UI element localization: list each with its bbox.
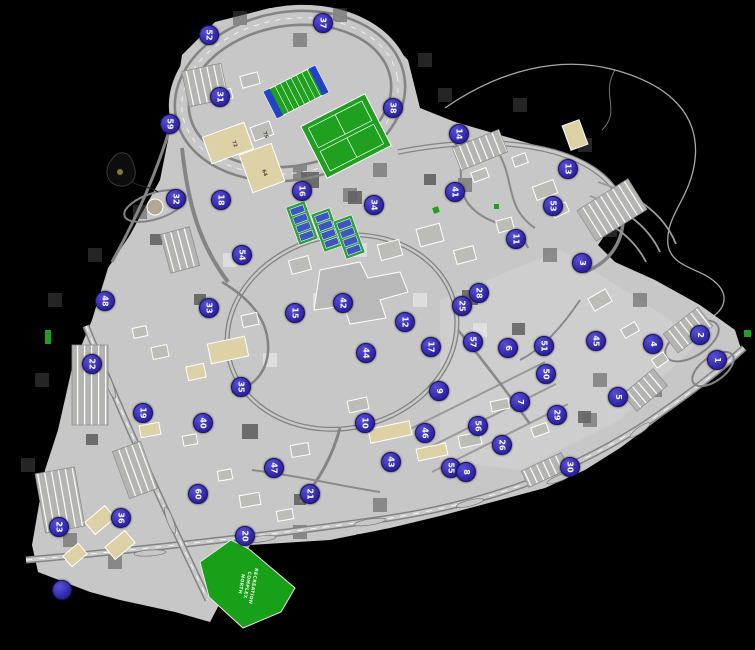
map-marker-1[interactable]: 1 [707,350,727,370]
marker-number: 5 [614,394,622,400]
marker-number: 32 [172,193,180,204]
map-marker-36[interactable]: 36 [111,508,131,528]
map-marker-60[interactable]: 60 [188,484,208,504]
map-marker-37[interactable]: 37 [313,13,333,33]
marker-number: 29 [553,409,561,420]
map-marker-52[interactable]: 52 [199,25,219,45]
marker-number: 10 [361,417,369,428]
marker-number: 20 [241,530,249,541]
campus-map-base: 72 75 64 [0,0,755,650]
marker-number: 43 [387,456,395,467]
marker-number: 23 [55,521,63,532]
marker-number: 6 [504,345,512,351]
map-marker-14[interactable]: 14 [449,124,469,144]
map-marker-2[interactable]: 2 [690,325,710,345]
map-marker-29[interactable]: 29 [547,405,567,425]
map-marker-26[interactable]: 26 [492,435,512,455]
map-marker-51[interactable]: 51 [534,336,554,356]
map-marker-17[interactable]: 17 [421,337,441,357]
map-marker-45[interactable]: 45 [586,331,606,351]
map-marker-22[interactable]: 22 [82,354,102,374]
map-marker-54[interactable]: 54 [232,245,252,265]
marker-number: 30 [566,461,574,472]
map-marker-44[interactable]: 44 [356,343,376,363]
map-marker-unlabeled[interactable] [52,580,72,600]
map-marker-50[interactable]: 50 [536,364,556,384]
map-marker-30[interactable]: 30 [560,457,580,477]
map-marker-34[interactable]: 34 [364,195,384,215]
marker-number: 33 [205,302,213,313]
map-marker-43[interactable]: 43 [381,452,401,472]
marker-number: 3 [578,260,586,266]
map-marker-9[interactable]: 9 [429,381,449,401]
marker-number: 55 [447,462,455,473]
map-marker-40[interactable]: 40 [193,413,213,433]
marker-number: 54 [238,249,246,260]
marker-number: 1 [713,357,721,363]
map-marker-23[interactable]: 23 [49,517,69,537]
marker-number: 44 [362,347,370,358]
marker-number: 18 [217,194,225,205]
map-marker-5[interactable]: 5 [608,387,628,407]
map-marker-59[interactable]: 59 [160,114,180,134]
marker-number: 45 [592,335,600,346]
marker-number: 22 [88,358,96,369]
campus-map: 72 75 64 [0,0,755,650]
marker-number: 26 [498,439,506,450]
map-marker-47[interactable]: 47 [264,458,284,478]
map-marker-4[interactable]: 4 [643,334,663,354]
map-marker-41[interactable]: 41 [445,182,465,202]
map-marker-12[interactable]: 12 [395,312,415,332]
map-marker-56[interactable]: 56 [468,416,488,436]
marker-number: 19 [139,407,147,418]
map-marker-31[interactable]: 31 [210,87,230,107]
map-marker-57[interactable]: 57 [463,332,483,352]
marker-number: 16 [298,185,306,196]
map-marker-19[interactable]: 19 [133,403,153,423]
map-marker-15[interactable]: 15 [285,303,305,323]
marker-number: 31 [216,91,224,102]
marker-number: 8 [462,469,470,475]
marker-number: 12 [401,316,409,327]
marker-number: 7 [516,399,524,405]
map-marker-16[interactable]: 16 [292,181,312,201]
map-marker-10[interactable]: 10 [355,413,375,433]
marker-number: 9 [435,388,443,394]
marker-number: 14 [455,128,463,139]
map-marker-25[interactable]: 25 [452,296,472,316]
map-marker-32[interactable]: 32 [166,189,186,209]
marker-number: 25 [458,300,466,311]
map-marker-20[interactable]: 20 [235,526,255,546]
marker-number: 52 [205,29,213,40]
marker-number: 42 [339,297,347,308]
marker-number: 47 [270,462,278,473]
map-marker-38[interactable]: 38 [383,98,403,118]
map-marker-48[interactable]: 48 [95,291,115,311]
marker-number: 59 [166,118,174,129]
map-marker-7[interactable]: 7 [510,392,530,412]
marker-number: 56 [474,420,482,431]
marker-number: 53 [549,200,557,211]
map-marker-46[interactable]: 46 [415,423,435,443]
marker-number: 40 [199,417,207,428]
marker-number: 38 [389,102,397,113]
marker-number: 17 [427,341,435,352]
marker-number: 37 [319,17,327,28]
map-marker-6[interactable]: 6 [498,338,518,358]
map-marker-53[interactable]: 53 [543,196,563,216]
map-marker-42[interactable]: 42 [333,293,353,313]
land-silhouette [32,0,742,622]
marker-number: 57 [469,336,477,347]
map-marker-18[interactable]: 18 [211,190,231,210]
marker-number: 2 [696,332,704,338]
marker-number: 46 [421,427,429,438]
map-marker-33[interactable]: 33 [199,298,219,318]
marker-number: 60 [194,488,202,499]
map-marker-21[interactable]: 21 [300,484,320,504]
marker-number: 13 [564,163,572,174]
map-marker-3[interactable]: 3 [572,253,592,273]
map-marker-35[interactable]: 35 [231,377,251,397]
marker-number: 34 [370,199,378,210]
marker-number: 35 [237,381,245,392]
marker-number: 48 [101,295,109,306]
map-marker-8[interactable]: 8 [456,462,476,482]
map-marker-13[interactable]: 13 [558,159,578,179]
map-marker-11[interactable]: 11 [506,229,526,249]
marker-number: 21 [306,488,314,499]
marker-number: 11 [512,233,520,244]
marker-number: 50 [542,368,550,379]
marker-number: 36 [117,512,125,523]
marker-number: 51 [540,340,548,351]
marker-number: 28 [475,287,483,298]
marker-number: 15 [291,307,299,318]
marker-number: 41 [451,186,459,197]
recreation-complex-field: RECREATION COMPLEX NORTH [200,540,295,628]
map-marker-28[interactable]: 28 [469,283,489,303]
marker-number: 4 [649,341,657,347]
